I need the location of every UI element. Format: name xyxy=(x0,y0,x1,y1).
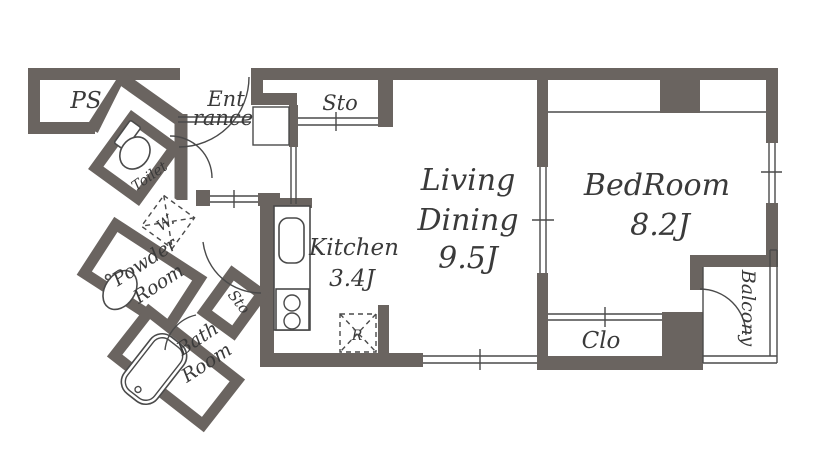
label-living-2: Dining xyxy=(416,203,518,238)
wall-entrance-step1 xyxy=(251,80,263,95)
wall-hall-a xyxy=(196,190,210,206)
floorplan-page: PS Ent rance Sto Living Dining 9.5J BedR… xyxy=(0,0,814,464)
label-living-3: 9.5J xyxy=(438,241,500,276)
window-living-bottom xyxy=(423,349,537,370)
wall-sto-right xyxy=(378,80,393,127)
wall-top-left xyxy=(28,68,180,80)
wall-divider-top xyxy=(537,80,548,167)
shoe-cabinet xyxy=(253,107,289,145)
wall-bedroom-right-upper xyxy=(766,68,778,143)
wall-kitchen-left xyxy=(260,198,274,362)
label-closet: Clo xyxy=(582,328,621,354)
wall-clo-right xyxy=(662,312,703,358)
label-fridge: R xyxy=(351,328,363,344)
label-living-1: Living xyxy=(420,163,516,198)
label-bedroom-1: BedRoom xyxy=(583,168,730,203)
sliding-door-clo xyxy=(548,307,662,327)
wall-sto-left xyxy=(289,105,298,147)
label-balcony: Balcony xyxy=(737,269,759,347)
wall-bottom-left xyxy=(260,353,423,367)
kitchen-counter xyxy=(274,206,310,330)
label-bedroom-2: 8.2J xyxy=(630,208,692,243)
window-bedroom-right xyxy=(761,143,782,203)
wall-balcony-top xyxy=(690,255,778,267)
wall-entrance-step2 xyxy=(251,93,297,105)
sliding-door-bedroom xyxy=(532,167,554,273)
label-kitchen-1: Kitchen xyxy=(308,235,399,261)
wall-balcony-left xyxy=(690,267,703,290)
label-kitchen-2: 3.4J xyxy=(329,266,377,292)
partition-hall-living xyxy=(291,147,296,204)
wall-ps-bottom xyxy=(28,122,95,134)
sliding-door-powder xyxy=(210,190,258,208)
wall-bedroom-right-lower xyxy=(766,203,778,255)
label-entrance-2: rance xyxy=(193,106,253,130)
floorplan-canvas: PS Ent rance Sto Living Dining 9.5J BedR… xyxy=(0,0,814,464)
wall-divider-bottom xyxy=(537,273,548,370)
wall-clo-bottom xyxy=(537,356,703,370)
kitchen-sink xyxy=(279,218,304,263)
label-ps: PS xyxy=(69,88,101,114)
wall-top-right xyxy=(251,68,778,80)
label-sto-top: Sto xyxy=(322,91,357,115)
wall-bedroom-pillar xyxy=(660,80,700,113)
